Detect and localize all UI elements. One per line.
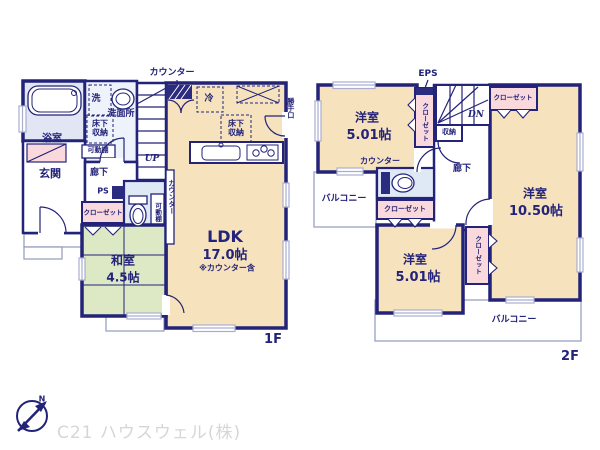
floorplan-page: カウンター 浴室 洗 洗面所 床下 収納 可動棚 UP 玄関 廊下 PS クロー… [0, 0, 600, 450]
label-eps: EPS [418, 70, 437, 80]
label-closet-a: クローゼット [420, 103, 427, 142]
label-hallway-2f: 廊下 [453, 165, 471, 175]
label-bedroom-c-size: 10.50帖 [509, 205, 563, 219]
label-bedroom-b-size: 5.01帖 [395, 271, 440, 285]
sink-icon [112, 89, 134, 109]
toilet-icon-2f [381, 172, 414, 194]
bathtub-icon [28, 86, 81, 115]
company-watermark: C21 ハウスウェル(株) [57, 418, 241, 443]
label-washitsu-name: 和室 [111, 254, 135, 267]
north-label: N [39, 396, 46, 405]
label-hallway-1f: 廊下 [90, 169, 108, 179]
label-pipe-space: PS [97, 188, 109, 197]
label-bathroom: 浴室 [42, 134, 62, 145]
label-underfloor-kitchen: 床下 収納 [228, 120, 244, 138]
label-stairs-down: DN [468, 111, 484, 121]
label-stairs-up: UP [145, 155, 160, 165]
label-washer: 洗 [91, 95, 100, 105]
label-counter-2f: カウンター [360, 158, 400, 167]
label-shelf-toilet: 可動棚 [153, 202, 160, 222]
label-underfloor-washroom: 床下 収納 [92, 120, 108, 138]
label-ldk-name: LDK [207, 228, 243, 246]
ldk-room [166, 83, 286, 328]
label-back-door: 勝手口 [286, 98, 294, 119]
label-fridge: 冷 [204, 95, 213, 105]
label-washitsu-size: 4.5帖 [106, 271, 139, 284]
label-closet-d: クローゼット [473, 236, 480, 275]
label-balcony-left: バルコニー [322, 195, 367, 205]
label-genkan: 玄関 [39, 168, 61, 180]
floorplan-drawing [0, 0, 600, 450]
toilet-icon-1f [129, 196, 147, 226]
entrance-steps [24, 234, 82, 259]
kitchen-counter [190, 142, 283, 163]
label-ldk-size: 17.0帖 [202, 249, 247, 263]
label-washroom: 洗面所 [107, 110, 134, 120]
eps-pointer [425, 80, 428, 88]
label-counter-side: カウンター [167, 180, 175, 215]
floor1-tag: 1F [264, 333, 282, 347]
floor2-tag: 2F [561, 350, 579, 364]
label-bedroom-a-size: 5.01帖 [346, 129, 391, 143]
label-balcony-bottom: バルコニー [492, 316, 537, 326]
eps-shaft [416, 88, 433, 95]
compass-north-icon [17, 401, 47, 431]
label-storage: 収納 [442, 129, 456, 137]
label-bedroom-b-name: 洋室 [403, 253, 427, 266]
label-counter-top: カウンター [149, 69, 194, 79]
label-closet-1f: クローゼット [84, 209, 123, 216]
shoe-cabinet [27, 144, 66, 162]
label-ldk-note: ※カウンター含 [199, 265, 255, 274]
label-shelf-washroom: 可動棚 [88, 147, 109, 155]
pipe-space-box [112, 186, 125, 199]
label-closet-b: クローゼット [494, 94, 533, 101]
label-bedroom-a-name: 洋室 [355, 111, 379, 124]
label-bedroom-c-name: 洋室 [523, 187, 547, 200]
label-closet-c: クローゼット [384, 206, 426, 214]
